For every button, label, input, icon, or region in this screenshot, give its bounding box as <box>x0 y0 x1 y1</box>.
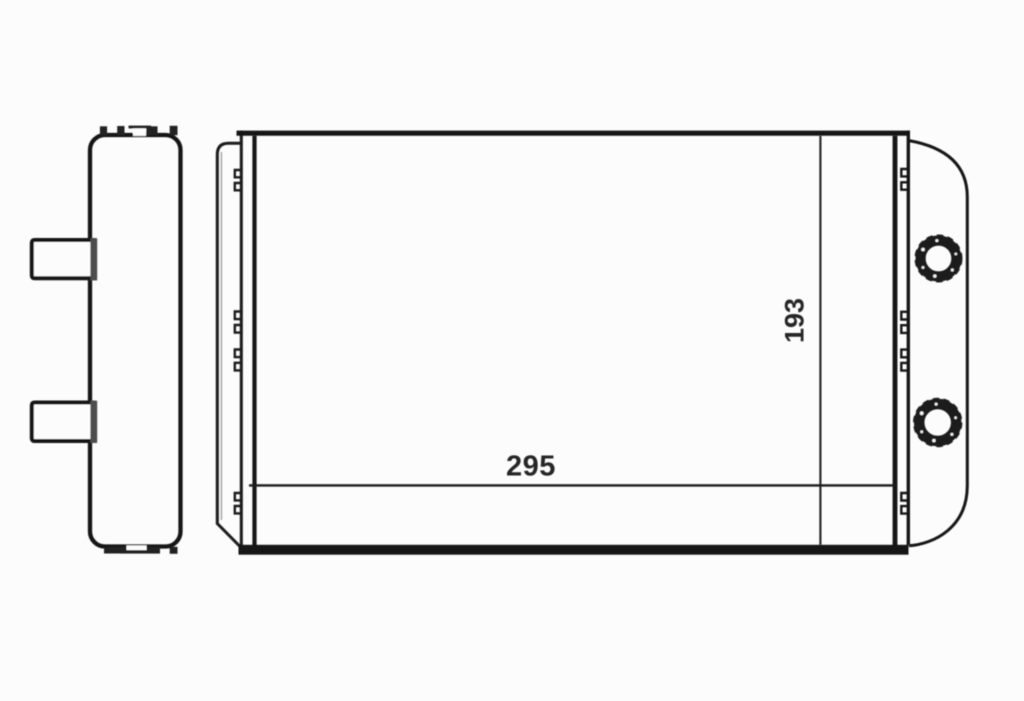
svg-text:193: 193 <box>780 298 810 343</box>
svg-text:295: 295 <box>506 451 556 483</box>
